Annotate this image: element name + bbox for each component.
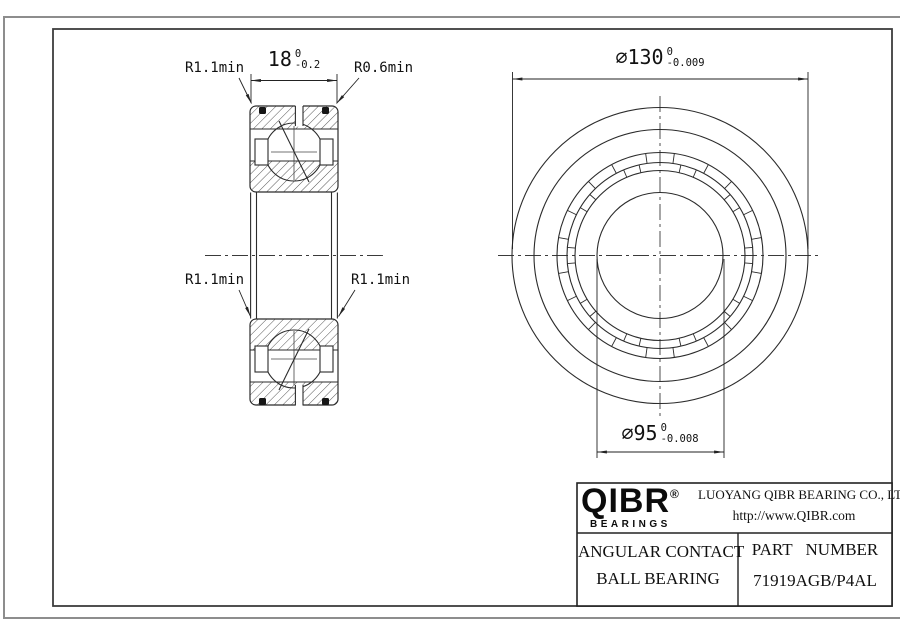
dim-width-value: 18	[268, 49, 292, 70]
dim-bore-value: ∅95	[621, 423, 657, 444]
registered-trademark-icon: ®	[670, 487, 679, 501]
radius-label-top-right: R0.6min	[354, 60, 413, 76]
dim-bore-tolerance: 0 -0.008	[661, 423, 699, 444]
engineering-drawing-page: 18 0 -0.2 R1.1min R0.6min R1.1min R1.1mi…	[0, 0, 900, 636]
groove-notch-top	[295, 105, 303, 127]
dim-od-value: ∅130	[615, 47, 663, 68]
dim-width-tolerance: 0 -0.2	[295, 49, 320, 70]
front-view	[498, 96, 822, 416]
company-website: http://www.QIBR.com	[698, 508, 890, 524]
company-logo: QIBR®	[581, 485, 679, 517]
dim-width: 18 0 -0.2	[234, 49, 354, 70]
dim-od-tolerance: 0 -0.009	[667, 47, 705, 68]
part-number-label: PART NUMBER	[738, 540, 892, 560]
section-view	[205, 105, 383, 407]
product-type-line1: ANGULAR CONTACT	[578, 542, 738, 562]
part-number-value: 71919AGB/P4AL	[738, 571, 892, 591]
radius-label-top-left: R1.1min	[185, 60, 244, 76]
company-name: LUOYANG QIBR BEARING CO., LTD	[698, 487, 890, 503]
groove-notch-bottom	[295, 385, 303, 407]
radius-label-mid-right: R1.1min	[351, 272, 410, 288]
product-type-line2: BALL BEARING	[578, 569, 738, 589]
logo-tagline: BEARINGS	[590, 519, 671, 530]
dim-outer-diameter: ∅130 0 -0.009	[600, 47, 720, 68]
radius-label-mid-left: R1.1min	[185, 272, 244, 288]
dim-bore-diameter: ∅95 0 -0.008	[600, 423, 720, 444]
logo-wordmark: QIBR	[581, 482, 670, 520]
